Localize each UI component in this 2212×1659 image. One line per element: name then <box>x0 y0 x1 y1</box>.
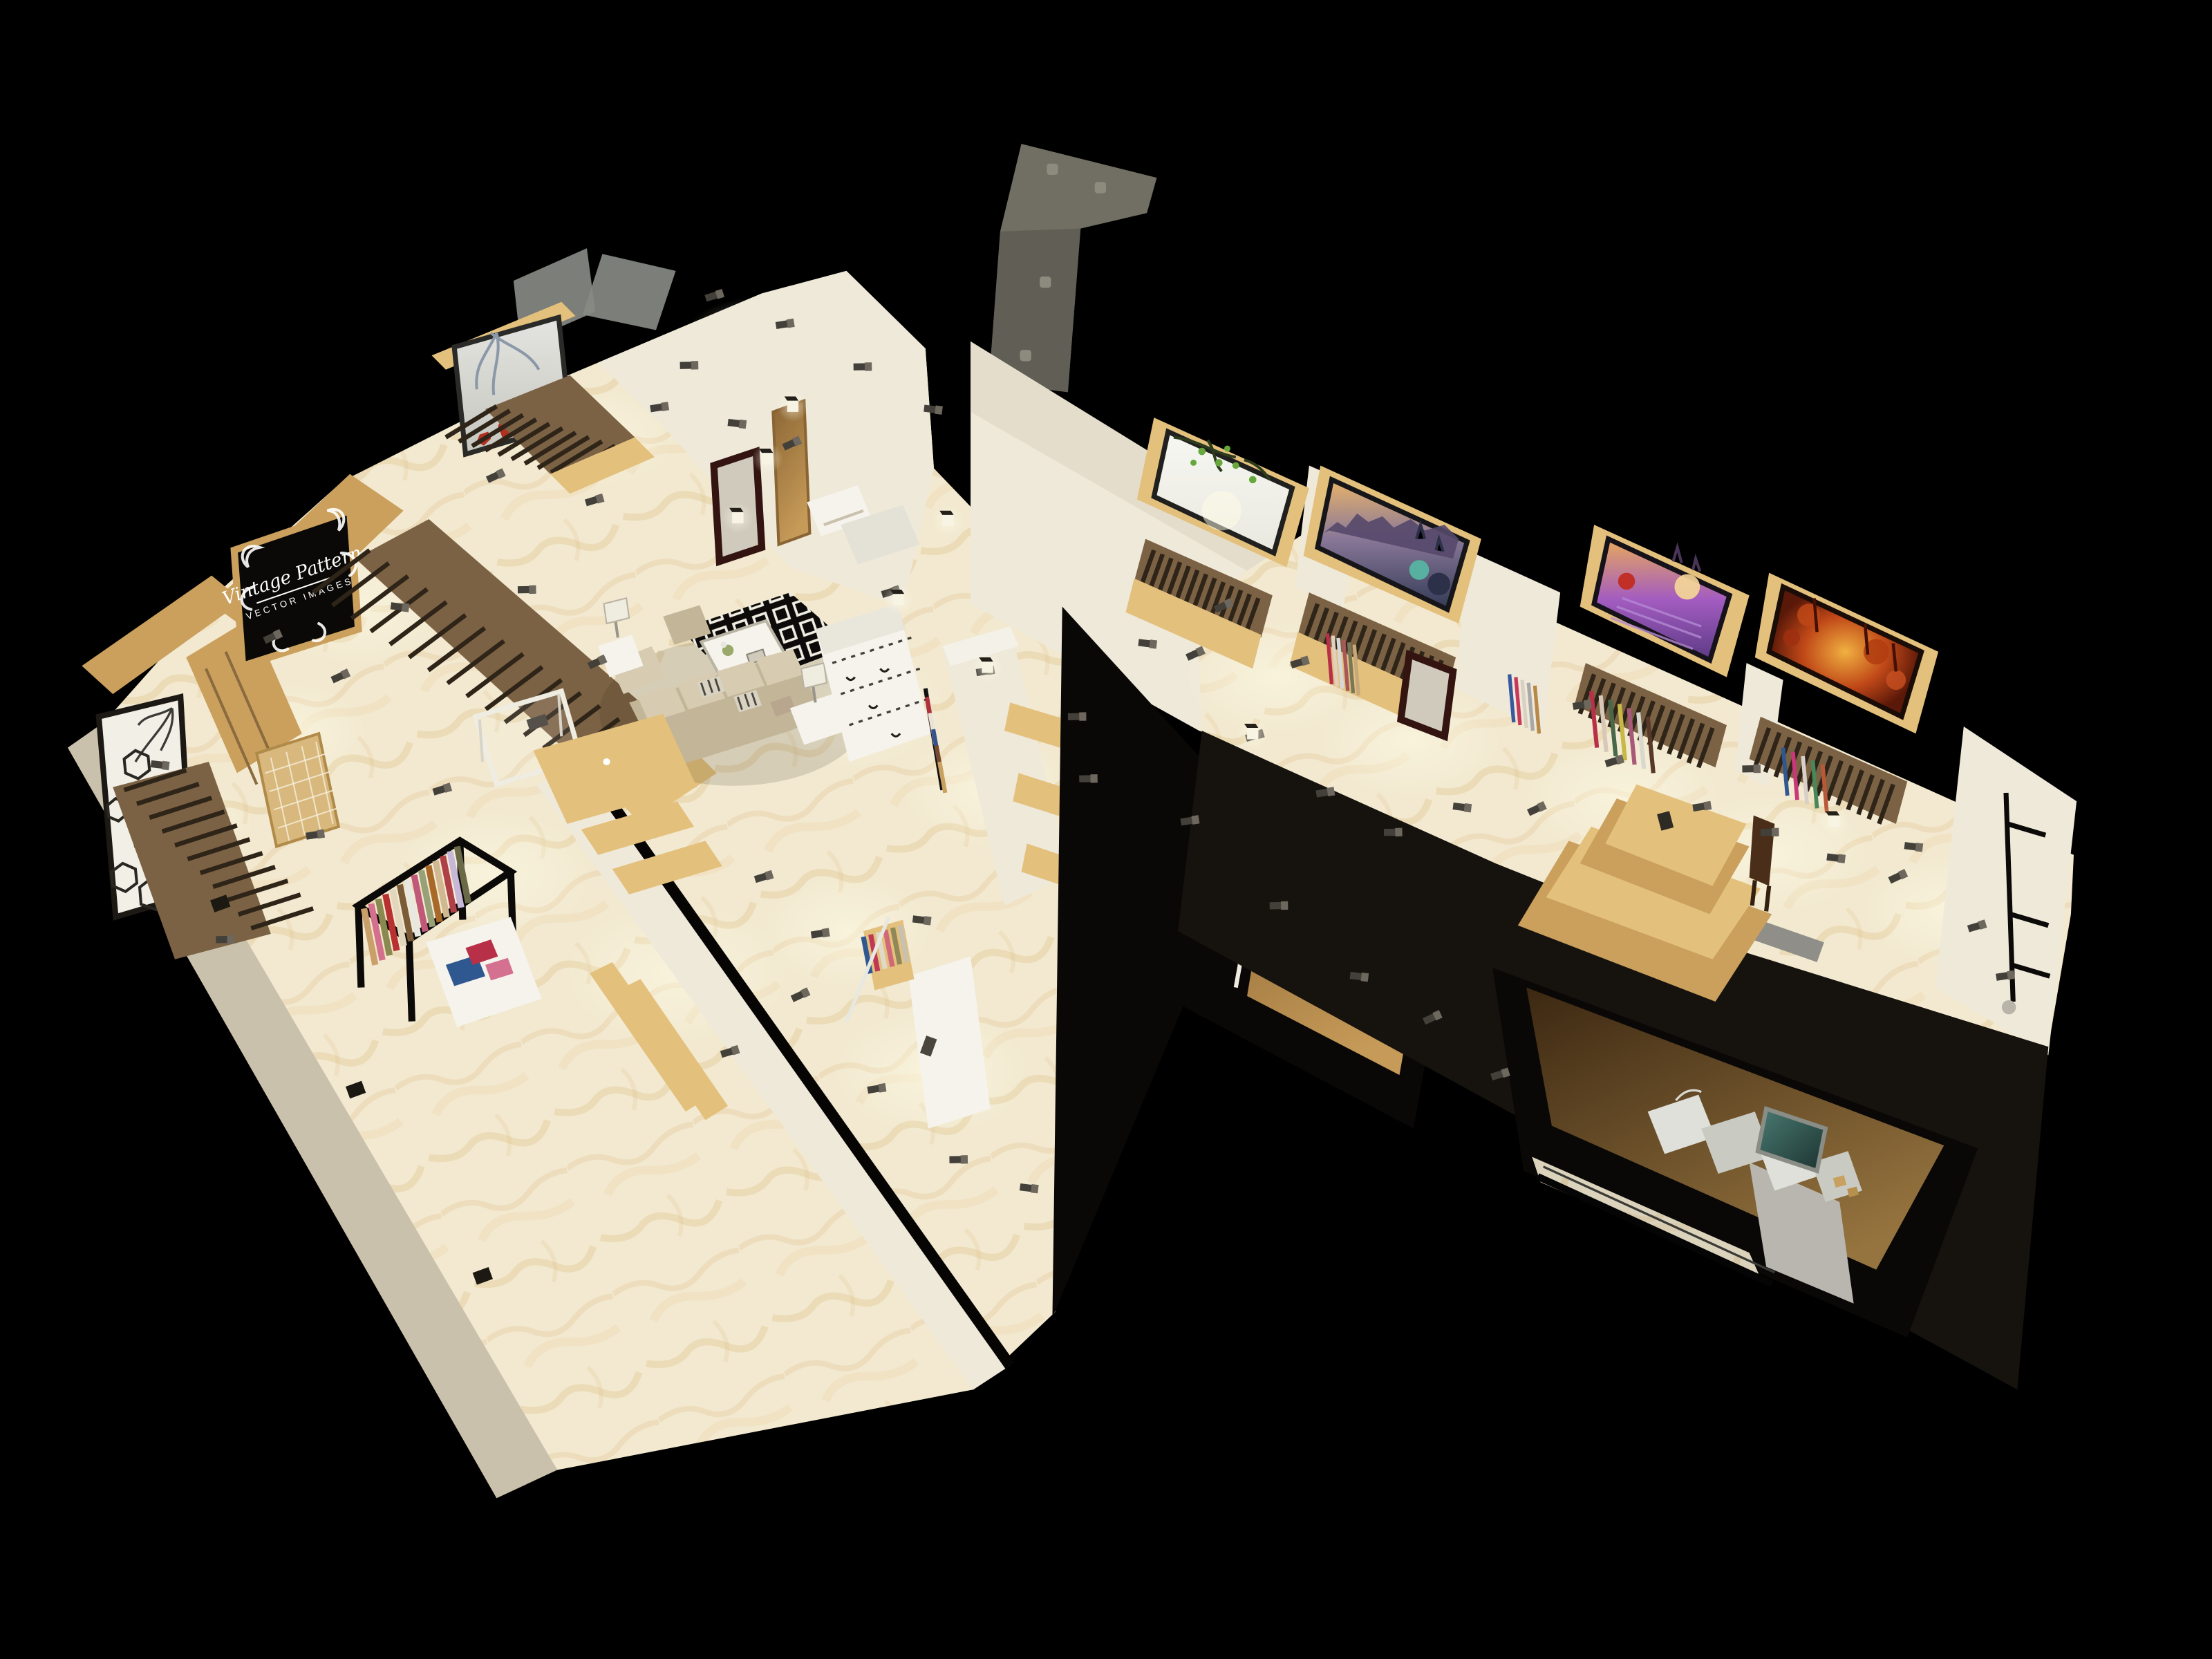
wall-sconce <box>883 584 915 615</box>
wall-sconce <box>722 503 753 534</box>
ceiling-light <box>1040 276 1051 288</box>
sconce-cube <box>732 512 743 523</box>
spotlight <box>680 361 699 370</box>
spotlight-head <box>162 761 170 770</box>
spotlight-head <box>1703 801 1712 811</box>
spotlight-head <box>878 1083 886 1093</box>
spotlight-head <box>317 829 325 839</box>
shiny-item <box>2002 1000 2016 1014</box>
spotlight <box>216 935 234 944</box>
spotlight-head <box>961 1155 968 1163</box>
wall-sconce <box>1819 805 1850 836</box>
sconce-cube <box>1247 728 1258 739</box>
spotlight-head <box>1754 765 1761 773</box>
wall-sconce <box>777 391 808 422</box>
spotlight-head <box>1090 774 1097 782</box>
wall-sconce <box>932 505 964 536</box>
spotlight-head <box>1031 1184 1039 1193</box>
spotlight <box>854 362 872 371</box>
spotlight-head <box>1361 973 1369 982</box>
red-ornament <box>1618 573 1635 590</box>
spotlight <box>1068 712 1087 721</box>
sconce-cube <box>942 515 953 526</box>
gallery-mirror <box>1401 655 1454 736</box>
spotlight <box>1742 765 1761 774</box>
sconce-cube <box>893 594 904 605</box>
spotlight-head <box>924 916 932 925</box>
spotlight-head <box>822 928 830 937</box>
wall-sconce <box>752 443 783 474</box>
sconce-cube <box>982 662 993 673</box>
spotlight-head <box>691 361 698 369</box>
wall-sconce <box>1237 718 1268 749</box>
ceiling-light <box>1095 182 1106 193</box>
spotlight-head <box>1837 854 1846 863</box>
spotlight <box>1384 828 1403 837</box>
spotlight-head <box>1079 712 1086 720</box>
spotlight-head <box>1395 828 1402 836</box>
spotlight-head <box>1464 803 1472 812</box>
spotlight-head <box>1281 901 1288 910</box>
art-light-glow <box>1202 491 1241 530</box>
store-floor-plan-render: Vintage Pattern VECTOR IMAGES <box>0 0 2212 1659</box>
spotlight-head <box>935 406 943 415</box>
spotlight <box>1270 901 1288 910</box>
spotlight-head <box>1327 787 1335 796</box>
spotlight-head <box>1149 639 1157 648</box>
spotlight-head <box>2007 971 2015 980</box>
spotlight <box>1761 828 1779 837</box>
wall-sconce <box>972 652 1003 683</box>
spotlight-head <box>787 319 795 328</box>
spotlight <box>1079 774 1098 783</box>
spotlight-head <box>227 935 234 944</box>
spotlight-head <box>402 603 410 612</box>
spotlight-head <box>529 585 536 594</box>
sconce-cube <box>787 401 798 412</box>
spotlight-head <box>1584 700 1592 709</box>
wood-door <box>773 401 809 545</box>
spotlight <box>518 585 536 594</box>
spotlight-head <box>1772 828 1779 836</box>
spotlight-head <box>739 420 747 429</box>
spotlight-head <box>1915 843 1924 852</box>
ceiling-light <box>1020 350 1031 361</box>
sconce-cube <box>1828 816 1839 827</box>
spotlight-head <box>865 362 872 371</box>
spotlight-head <box>661 402 669 411</box>
spotlight-head <box>1191 815 1199 825</box>
ceiling-light <box>1047 164 1058 175</box>
spotlight <box>949 1155 968 1164</box>
sconce-cube <box>762 453 773 464</box>
